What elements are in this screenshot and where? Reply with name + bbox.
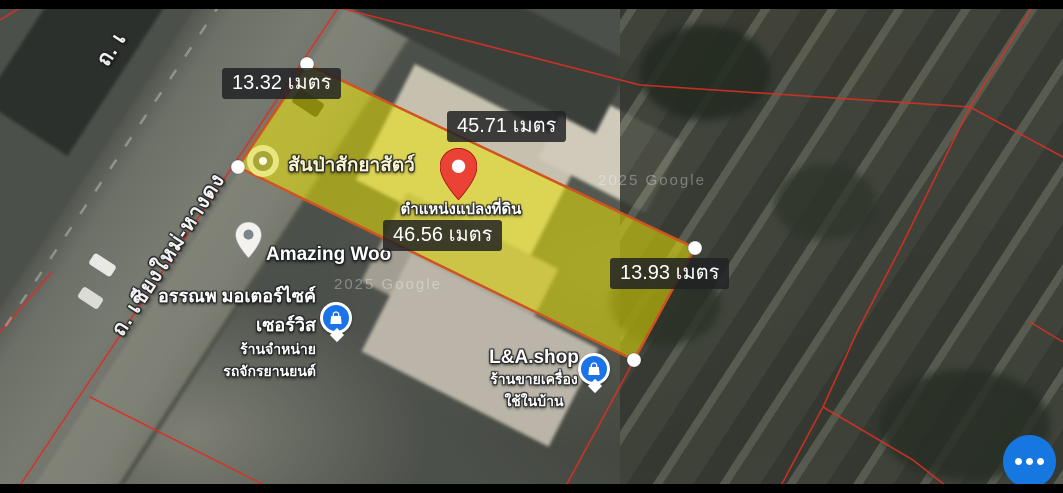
map-screenshot: ถ. เชียงใหม่-หางดง ถ. เ 2025 Google 2025… bbox=[0, 0, 1063, 493]
google-watermark: 2025 Google bbox=[598, 172, 706, 189]
poi-line: อรรณพ มอเตอร์ไซค์ bbox=[140, 281, 316, 310]
poi-dot-center bbox=[259, 157, 267, 165]
shopping-bag-icon[interactable] bbox=[320, 302, 352, 334]
satellite-map[interactable]: ถ. เชียงใหม่-หางดง ถ. เ 2025 Google 2025… bbox=[0, 0, 1063, 493]
poi-line: เซอร์วิส bbox=[140, 310, 316, 339]
shopping-bag-icon[interactable] bbox=[578, 353, 610, 385]
poi-label-motorcycle[interactable]: อรรณพ มอเตอร์ไซค์ เซอร์วิส ร้านจำหน่าย ร… bbox=[140, 281, 316, 383]
poi-subline: รถจักรยานยนต์ bbox=[140, 361, 316, 383]
poi-label-vet[interactable]: สันป่าสักยาสัตว์ bbox=[288, 150, 415, 180]
google-watermark: 2025 Google bbox=[334, 276, 442, 293]
more-options-icon bbox=[1015, 458, 1022, 465]
poi-subline: ร้านจำหน่าย bbox=[140, 339, 316, 361]
more-options-button[interactable] bbox=[1003, 435, 1056, 488]
more-options-icon bbox=[1037, 458, 1044, 465]
bag-glyph bbox=[328, 310, 344, 326]
place-pin-icon[interactable] bbox=[235, 222, 262, 258]
bottom-letterbox-bar bbox=[0, 484, 1063, 493]
measurement-label-southeast: 13.93 เมตร bbox=[610, 258, 729, 289]
bag-glyph bbox=[586, 361, 602, 377]
measurement-label-northwest: 13.32 เมตร bbox=[222, 68, 341, 99]
measurement-label-south: 46.56 เมตร bbox=[383, 220, 502, 251]
plot-location-pin[interactable] bbox=[440, 148, 477, 200]
top-letterbox-bar bbox=[0, 0, 1063, 9]
poi-label-amazing[interactable]: Amazing Woo bbox=[266, 244, 391, 266]
poi-subline: ใช้ในบ้าน bbox=[459, 391, 609, 413]
measurement-label-northeast: 45.71 เมตร bbox=[447, 111, 566, 142]
pin-caption: ตำแหน่งแปลงที่ดิน bbox=[395, 197, 527, 221]
poi-dot-icon[interactable] bbox=[247, 145, 279, 177]
more-options-icon bbox=[1026, 458, 1033, 465]
